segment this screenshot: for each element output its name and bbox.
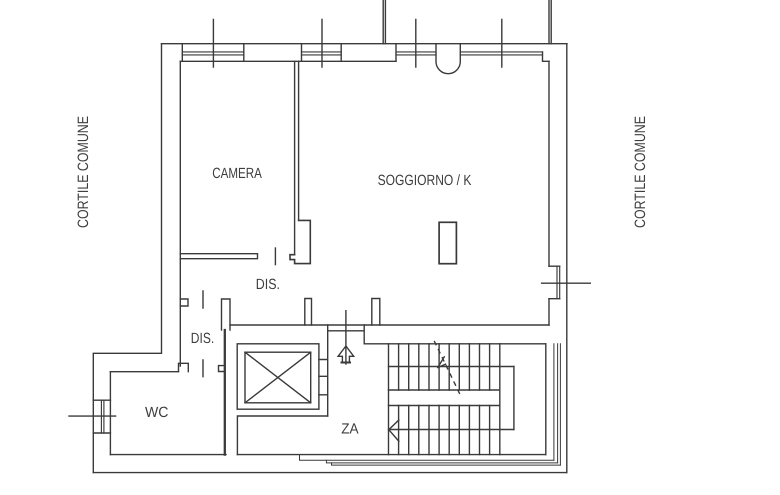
svg-text:DIS.: DIS. — [256, 277, 280, 293]
svg-text:SOGGIORNO / K: SOGGIORNO / K — [378, 173, 472, 189]
svg-text:DIS.: DIS. — [191, 331, 214, 347]
svg-text:CORTILE COMUNE: CORTILE COMUNE — [632, 116, 649, 228]
svg-text:CAMERA: CAMERA — [212, 166, 262, 182]
svg-text:ZA: ZA — [341, 422, 359, 438]
svg-text:WC: WC — [145, 405, 169, 421]
svg-text:CORTILE COMUNE: CORTILE COMUNE — [75, 116, 92, 228]
